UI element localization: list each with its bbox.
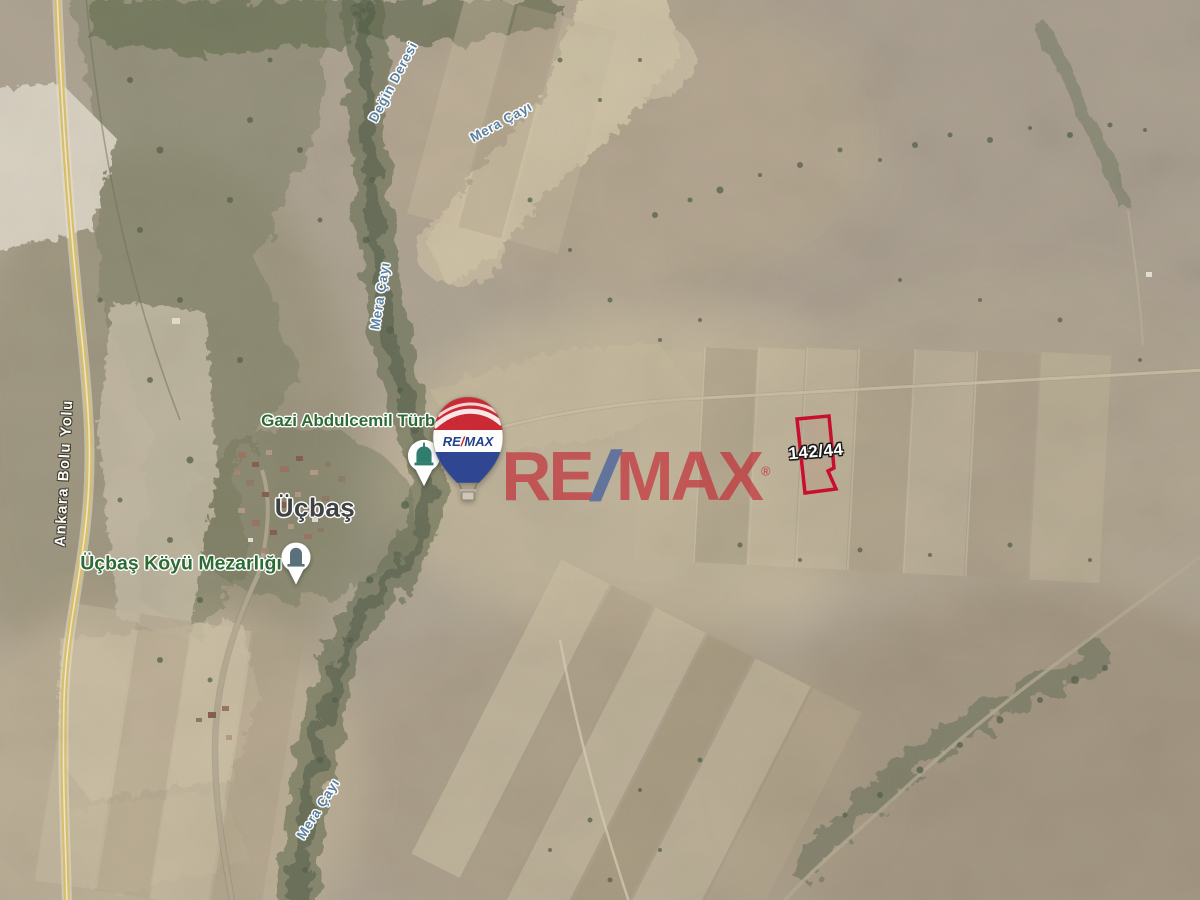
watermark-max: MAX	[616, 437, 761, 515]
poi-label-ucbas-koyu-mezarligi[interactable]: Üçbaş Köyü Mezarlığı	[80, 553, 282, 576]
balloon-wordmark: RE/MAX	[443, 434, 495, 449]
registered-trademark-symbol: ®	[761, 464, 770, 479]
satellite-map-canvas[interactable]: Ankara Bolu Yolu Değin Deresi Mera Çayı …	[0, 0, 1200, 900]
remax-watermark: RE/MAX®	[501, 441, 770, 511]
cemetery-pin-icon[interactable]	[277, 540, 315, 588]
town-label-ucbas[interactable]: Üçbaş	[275, 493, 356, 524]
remax-balloon-logo: RE/MAX	[426, 394, 510, 504]
watermark-re: RE	[501, 437, 591, 515]
